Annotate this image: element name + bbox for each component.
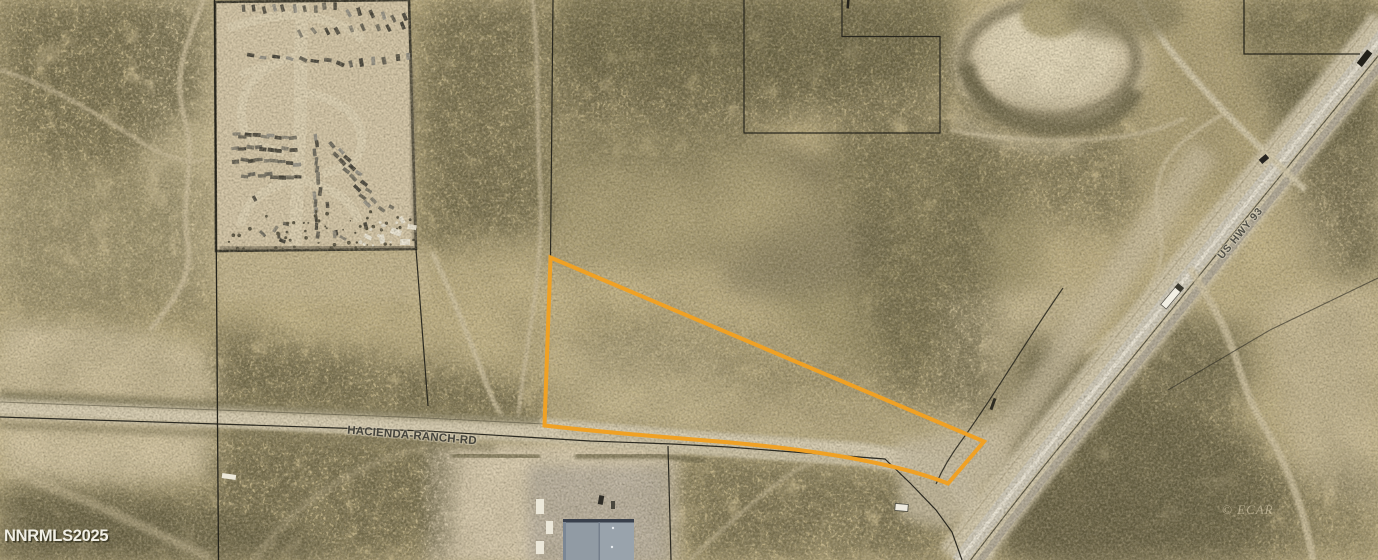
svg-text:NNRMLS2025: NNRMLS2025 bbox=[4, 527, 108, 545]
svg-text:© ECAR: © ECAR bbox=[1222, 502, 1274, 517]
